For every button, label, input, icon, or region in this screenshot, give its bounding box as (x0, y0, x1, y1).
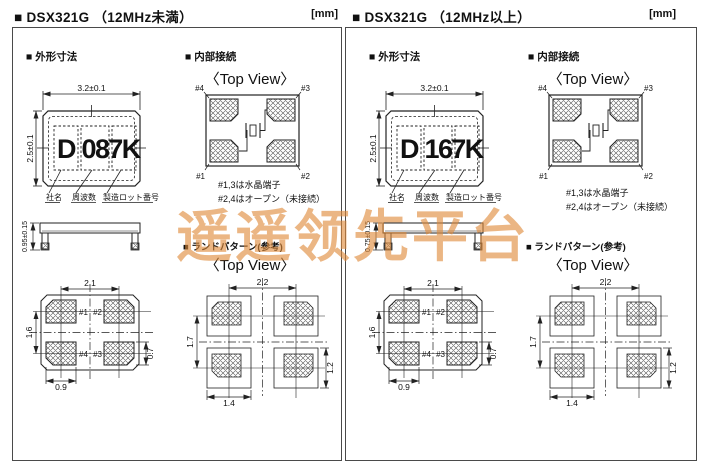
bottom-dim-pitch-y: 1.6 (367, 326, 377, 338)
internal-pin-bl: #1 (196, 172, 205, 181)
bottom-dim-pad-w: 0.9 (398, 382, 410, 392)
bottom-dim-pitch-x: 2.1 (427, 278, 439, 288)
bottom-dim-pad-w: 0.9 (55, 382, 67, 392)
bottom-pin-br: #3 (436, 350, 445, 359)
bottom-pin-tl: #1 (422, 308, 431, 317)
land-dim-pad-h: 1.2 (668, 362, 678, 374)
bottom-pin-bl: #4 (79, 350, 88, 359)
land-dim-pitch-y: 1.7 (185, 336, 195, 348)
land-pattern-drawing (193, 278, 329, 400)
land-dim-pad-h: 1.2 (325, 362, 335, 374)
bottom-dim-pad-h: 0.7 (145, 347, 155, 359)
marking-lot: 7K (108, 134, 142, 164)
outline-dim-height: 2.5±0.1 (368, 134, 378, 163)
bottom-dim-pad-h: 0.7 (488, 347, 498, 359)
land-dim-pitch-x: 2.2 (600, 277, 612, 287)
outline-heading: ■ 外形寸法 (369, 50, 421, 63)
internal-top-view-label: 〈Top View〉 (548, 71, 639, 88)
marking-label-frequency: 周波数 (72, 192, 96, 202)
bottom-view (29, 284, 153, 384)
outline-side-view (30, 223, 140, 250)
panel0-title: ■ DSX321G （12MHz未満） (14, 6, 193, 26)
outline-heading: ■ 外形寸法 (26, 50, 78, 63)
bottom-pin-tl: #1 (79, 308, 88, 317)
internal-note-1: #1,3は水晶端子 (218, 179, 281, 190)
bottom-dim-pitch-x: 2.1 (84, 278, 96, 288)
internal-connection-drawing (547, 92, 644, 170)
panel0-unit: [mm] (298, 8, 338, 20)
panel-dsx321g-over-12mhz: ■ 外形寸法 ■ 内部接続 3.2±0.1 2.5±0.1 D 16 7K 社名… (345, 27, 697, 461)
panel0-drawing: ■ 外形寸法 ■ 内部接続 3.2±0.1 2.5±0.1 D 08 7K 社名… (13, 28, 343, 459)
internal-heading: ■ 内部接続 (528, 50, 580, 63)
internal-note-2: #2,4はオープン（未接続） (218, 193, 325, 204)
marking-frequency: 08 (81, 134, 110, 164)
internal-note-2: #2,4はオープン（未接続） (566, 201, 673, 212)
bottom-pin-bl: #4 (422, 350, 431, 359)
land-dim-pad-w: 1.4 (566, 398, 578, 408)
panel1-unit: [mm] (636, 8, 676, 20)
internal-pin-tl: #4 (538, 84, 547, 93)
panel1-drawing: ■ 外形寸法 ■ 内部接続 3.2±0.1 2.5±0.1 D 16 7K 社名… (356, 28, 686, 459)
marking-vendor: D (57, 134, 76, 164)
datasheet-page: { "watermark": {"text": "遥遥领先平台", "color… (0, 0, 702, 470)
land-pattern-drawing (536, 278, 672, 400)
land-heading: ■ ランドパターン(参考) (183, 241, 283, 253)
outline-dim-thickness: 0.75±0.15 (365, 221, 372, 252)
panel1-title: ■ DSX321G （12MHz以上） (352, 6, 531, 26)
marking-vendor: D (400, 134, 419, 164)
land-top-view-label: 〈Top View〉 (205, 257, 296, 274)
bottom-view (372, 284, 496, 384)
outline-side-view (373, 223, 483, 250)
marking-label-lot: 製造ロット番号 (446, 192, 502, 202)
internal-pin-tr: #3 (301, 84, 310, 93)
land-heading: ■ ランドパターン(参考) (526, 241, 626, 253)
marking-lot: 7K (451, 134, 485, 164)
land-dim-pad-w: 1.4 (223, 398, 235, 408)
marking-label-vendor: 社名 (46, 192, 62, 202)
marking-label-frequency: 周波数 (415, 192, 439, 202)
internal-connection-drawing (204, 92, 301, 170)
internal-pin-br: #2 (301, 172, 310, 181)
internal-pin-bl: #1 (539, 172, 548, 181)
outline-dim-thickness: 0.95±0.15 (22, 221, 29, 252)
panel-dsx321g-under-12mhz: ■ 外形寸法 ■ 内部接続 3.2±0.1 2.5±0.1 D 08 7K 社名… (12, 27, 342, 461)
internal-heading: ■ 内部接続 (185, 50, 237, 63)
outline-dim-height: 2.5±0.1 (25, 134, 35, 163)
marking-frequency: 16 (424, 134, 453, 164)
outline-dim-width: 3.2±0.1 (420, 83, 449, 93)
outline-dim-width: 3.2±0.1 (77, 83, 106, 93)
internal-pin-tr: #3 (644, 84, 653, 93)
internal-pin-tl: #4 (195, 84, 204, 93)
marking-label-lot: 製造ロット番号 (103, 192, 159, 202)
land-dim-pitch-y: 1.7 (528, 336, 538, 348)
marking-label-vendor: 社名 (389, 192, 405, 202)
bottom-pin-tr: #2 (93, 308, 102, 317)
land-top-view-label: 〈Top View〉 (548, 257, 639, 274)
internal-note-1: #1,3は水晶端子 (566, 187, 629, 198)
internal-top-view-label: 〈Top View〉 (205, 71, 296, 88)
bottom-pin-br: #3 (93, 350, 102, 359)
land-dim-pitch-x: 2.2 (257, 277, 269, 287)
bottom-dim-pitch-y: 1.6 (24, 326, 34, 338)
bottom-pin-tr: #2 (436, 308, 445, 317)
internal-pin-br: #2 (644, 172, 653, 181)
